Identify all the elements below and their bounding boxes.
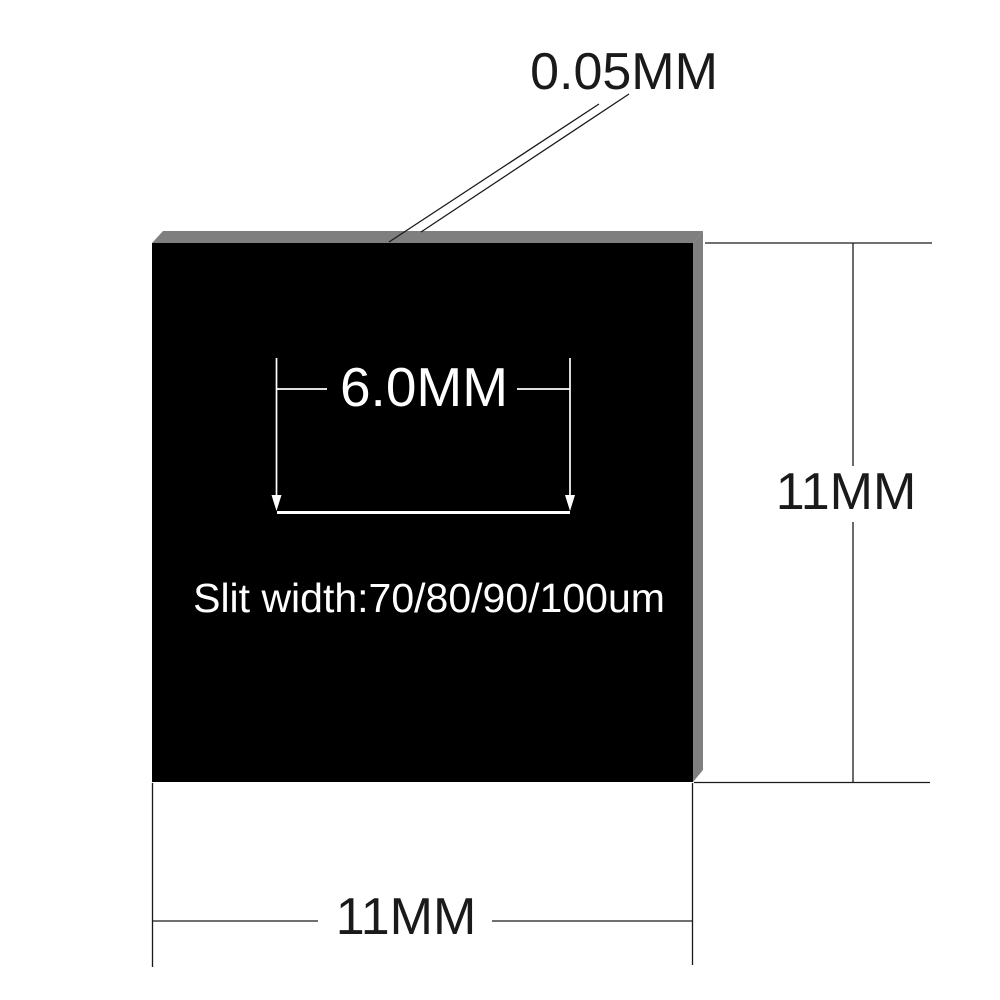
thickness-leader-line-2 <box>421 94 629 232</box>
slit-aperture <box>277 511 570 514</box>
slit-dimension-diagram: 0.05MM 6.0MM Slit width:70/80/90/100um 1… <box>0 0 1000 1000</box>
width-label: 11MM <box>336 891 477 943</box>
plate-top-face <box>152 231 703 243</box>
height-label: 11MM <box>776 466 917 518</box>
plate-right-face <box>693 231 703 782</box>
slit-length-label: 6.0MM <box>340 360 508 415</box>
thickness-label: 0.05MM <box>530 46 718 98</box>
thickness-leader-line-1 <box>389 104 599 242</box>
slit-width-label: Slit width:70/80/90/100um <box>193 578 665 619</box>
